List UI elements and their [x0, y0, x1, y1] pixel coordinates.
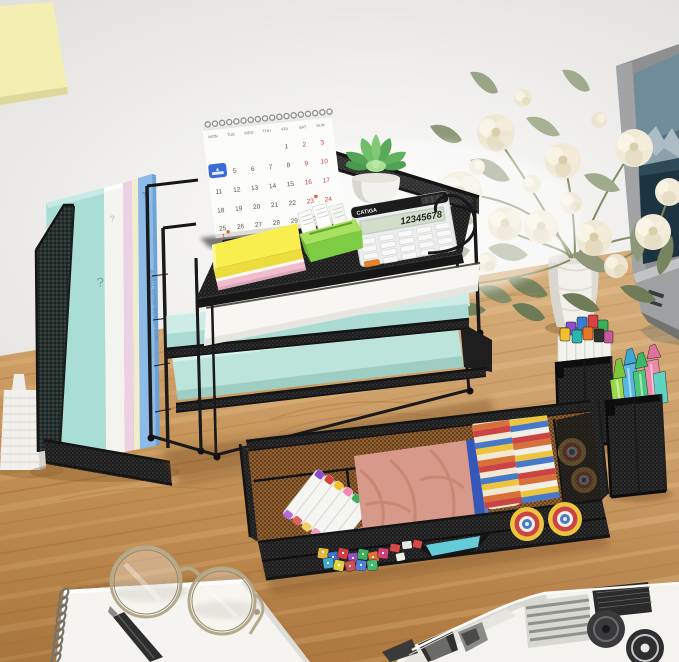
- svg-text:25: 25: [219, 225, 227, 233]
- svg-text:18: 18: [217, 207, 225, 215]
- svg-text:TUE: TUE: [227, 132, 236, 138]
- svg-text:?: ?: [109, 214, 115, 224]
- svg-text:26: 26: [237, 223, 245, 231]
- svg-text:27: 27: [255, 221, 263, 229]
- svg-text:20: 20: [253, 203, 261, 211]
- svg-text:12: 12: [233, 186, 241, 194]
- svg-text:21: 21: [271, 201, 279, 209]
- svg-text:10: 10: [320, 158, 328, 166]
- svg-text:THU: THU: [262, 128, 271, 134]
- svg-text:22: 22: [289, 200, 297, 208]
- svg-text:MON: MON: [208, 133, 218, 139]
- svg-text:FRI: FRI: [281, 126, 288, 132]
- svg-text:28: 28: [273, 219, 281, 227]
- svg-text:SUN: SUN: [316, 122, 325, 128]
- svg-text:17: 17: [322, 177, 330, 185]
- svg-text:11: 11: [215, 188, 223, 196]
- svg-text:15: 15: [287, 181, 295, 189]
- svg-text:16: 16: [304, 179, 312, 187]
- svg-text:23: 23: [306, 198, 314, 206]
- svg-text:19: 19: [235, 205, 243, 213]
- svg-text:13: 13: [251, 184, 259, 192]
- svg-text:SAT: SAT: [299, 124, 308, 130]
- svg-text:?: ?: [96, 275, 104, 290]
- svg-text:WED: WED: [244, 130, 254, 136]
- svg-text:14: 14: [269, 183, 277, 191]
- svg-text:24: 24: [324, 196, 332, 204]
